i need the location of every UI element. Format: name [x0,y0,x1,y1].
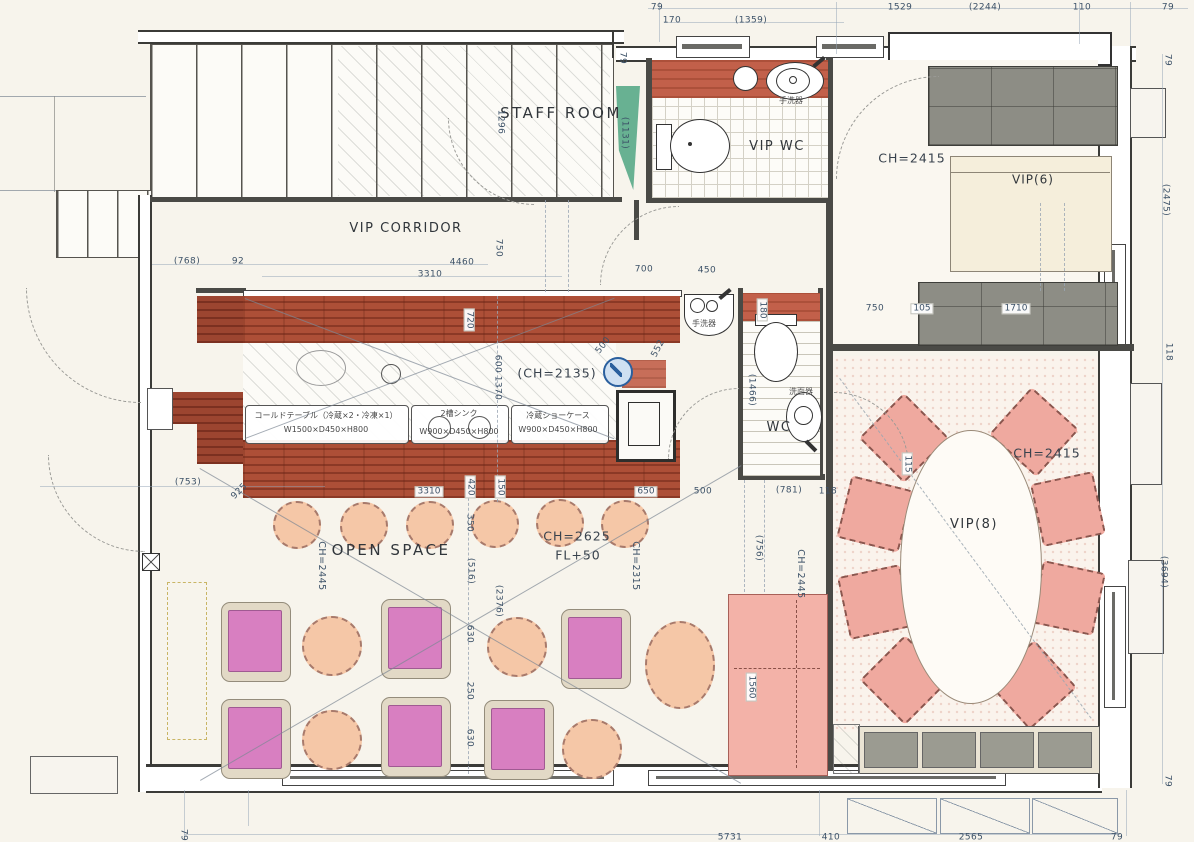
dim-756: (756) [753,535,762,561]
dim-1466: (1466) [746,374,755,406]
ceiling-height-2445-left: CH=2445 [316,541,326,590]
open-space-label: OPEN SPACE [332,543,451,559]
dim-right-79-bottom: 79 [1162,775,1171,787]
dim-counter-150: 150 [494,475,505,498]
dim-552-leader: 552 [651,339,668,360]
dim-top-2244: (2244) [969,3,1001,12]
dim-corridor-92: 92 [232,257,244,266]
dim-1560: 1560 [745,673,756,702]
dim-corridor-750-v: 750 [493,239,502,257]
dim-2376: (2376) [493,585,502,617]
equipment-sink-size: W900×D450×H800 [419,428,498,436]
dim-bottom-79-left: 79 [178,829,187,841]
dim-bottom-2565: 2565 [959,833,984,842]
dim-counter-650: 650 [634,486,657,497]
equipment-sink-name: 2槽シンク [440,410,477,418]
dim-top-79-left: 79 [651,3,663,12]
dim-bottom-5731: 5731 [718,833,743,842]
dim-720: 720 [463,308,474,331]
dim-250: 250 [464,682,473,700]
ceiling-height-open-space: CH=2625 [543,529,610,542]
dim-750-vip6: 750 [866,304,884,313]
ceiling-height-vip8: CH=2415 [1013,446,1080,459]
staff-room-label: STAFF ROOM [500,106,622,122]
dim-1131: (1131) [619,117,628,149]
hand-basin-top-label: 手洗器 [779,97,803,105]
dim-1370: 1370 [492,376,501,401]
dim-corridor-3310: 3310 [418,270,443,279]
dim-bottom-79-right: 79 [1111,833,1123,842]
vip6-label: VIP(6) [1012,174,1054,187]
floor-plan-sheet: STAFF ROOMVIP CORRIDORVIP WCVIP(6)VIP(8)… [0,0,1194,842]
dim-top-1529: 1529 [888,3,913,12]
dim-1296: 1296 [495,110,504,135]
dim-right-2475: (2475) [1160,184,1169,216]
text-layer: STAFF ROOMVIP CORRIDORVIP WCVIP(6)VIP(8)… [0,0,1194,842]
vip-wc-label: VIP WC [749,140,805,154]
dim-105: 105 [910,303,933,314]
equipment-cold-table-name: コールドテーブル（冷蔵×2・冷凍×1） [254,412,397,420]
dim-781: (781) [776,486,802,495]
dim-450: 450 [698,266,716,275]
dim-925: 925 [230,482,250,502]
dim-right-79-top: 79 [1162,54,1171,66]
dim-right-118: 118 [1163,343,1172,361]
vip8-label: VIP(8) [950,518,998,532]
dim-600: 600 [492,355,501,373]
ceiling-height-2315: CH=2315 [630,541,640,590]
dim-top-1359: (1359) [735,16,767,25]
dim-700: 700 [635,265,653,274]
dim-500: 500 [694,487,712,496]
dim-180: 180 [756,298,767,321]
dim-corridor-4460: 4460 [450,258,475,267]
dim-counter-420: 420 [464,475,475,498]
wash-basin-label: 洗面器 [789,388,813,396]
dim-79-stair: 79 [617,52,626,64]
dim-350: 350 [464,514,473,532]
hand-basin-mid-label: 手洗器 [692,320,716,328]
vip-corridor-label: VIP CORRIDOR [349,222,462,236]
dim-top-79-right: 79 [1162,3,1174,12]
dim-corridor-768: (768) [174,257,200,266]
wc-label: WC [767,421,792,435]
ceiling-height-2445-right: CH=2445 [795,549,805,598]
dim-right-3694: (3694) [1158,556,1167,588]
dim-753: (753) [175,478,201,487]
equipment-cold-table-size: W1500×D450×H800 [284,426,368,434]
equipment-showcase-size: W900×D450×H800 [518,426,597,434]
dim-top-110: 110 [1073,3,1091,12]
dim-vip8-115: 115 [901,452,912,475]
floor-level-open-space: FL+50 [555,548,601,561]
dim-118: 118 [819,487,837,496]
dim-630-b: 630 [464,729,473,747]
dim-counter-3310: 3310 [415,486,444,497]
dim-1710: 1710 [1002,303,1031,314]
dim-top-170: 170 [663,16,681,25]
ceiling-height-vip6: CH=2415 [878,151,945,164]
equipment-showcase-name: 冷蔵ショーケース [526,412,590,420]
ceiling-height-counter: (CH=2135) [517,366,596,379]
dim-bottom-410: 410 [822,833,840,842]
dim-630-a: 630 [464,625,473,643]
dim-516: (516) [465,558,474,584]
dim-500-leader: 500 [595,336,614,356]
